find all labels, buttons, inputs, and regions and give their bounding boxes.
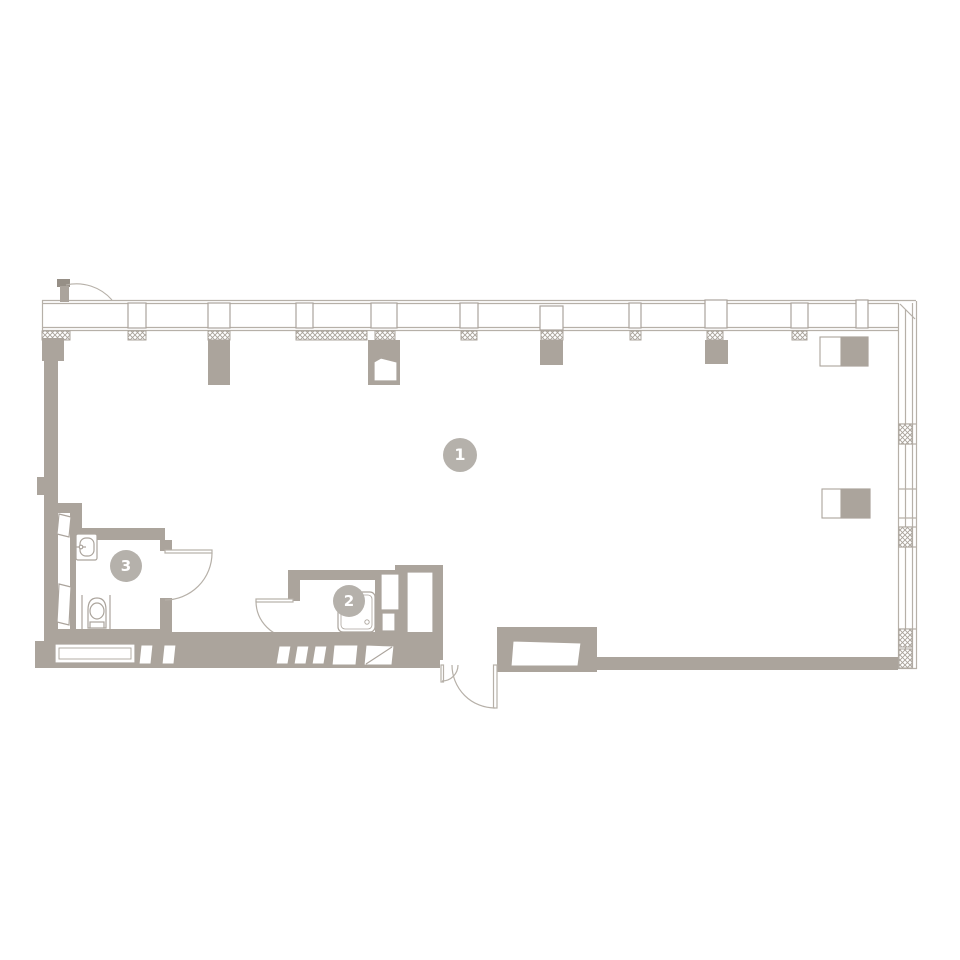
floor-plan-drawing [0,0,960,960]
room-2-badge: 2 [333,585,365,617]
left-wall [37,338,58,668]
radiator-icon [820,337,870,518]
top-window-wall [42,300,916,340]
sink-icon [76,534,97,560]
room-3-badge: 3 [110,550,142,582]
toilet-icon [82,595,110,630]
mullion-icons [128,300,868,330]
column-hatch-icons [42,331,807,340]
shaft-door-leaves [57,514,71,625]
entrance-door-icon [441,665,497,708]
right-window-wall [898,301,917,669]
floor-plan-page: 1 2 3 [0,0,960,960]
balcony-door-icon [57,279,112,302]
built-in-cabinet-icon [55,644,135,663]
shaft-hatch-inset [374,358,397,381]
interior-door-icon-room3 [165,550,212,600]
room-1-badge: 1 [443,438,477,472]
